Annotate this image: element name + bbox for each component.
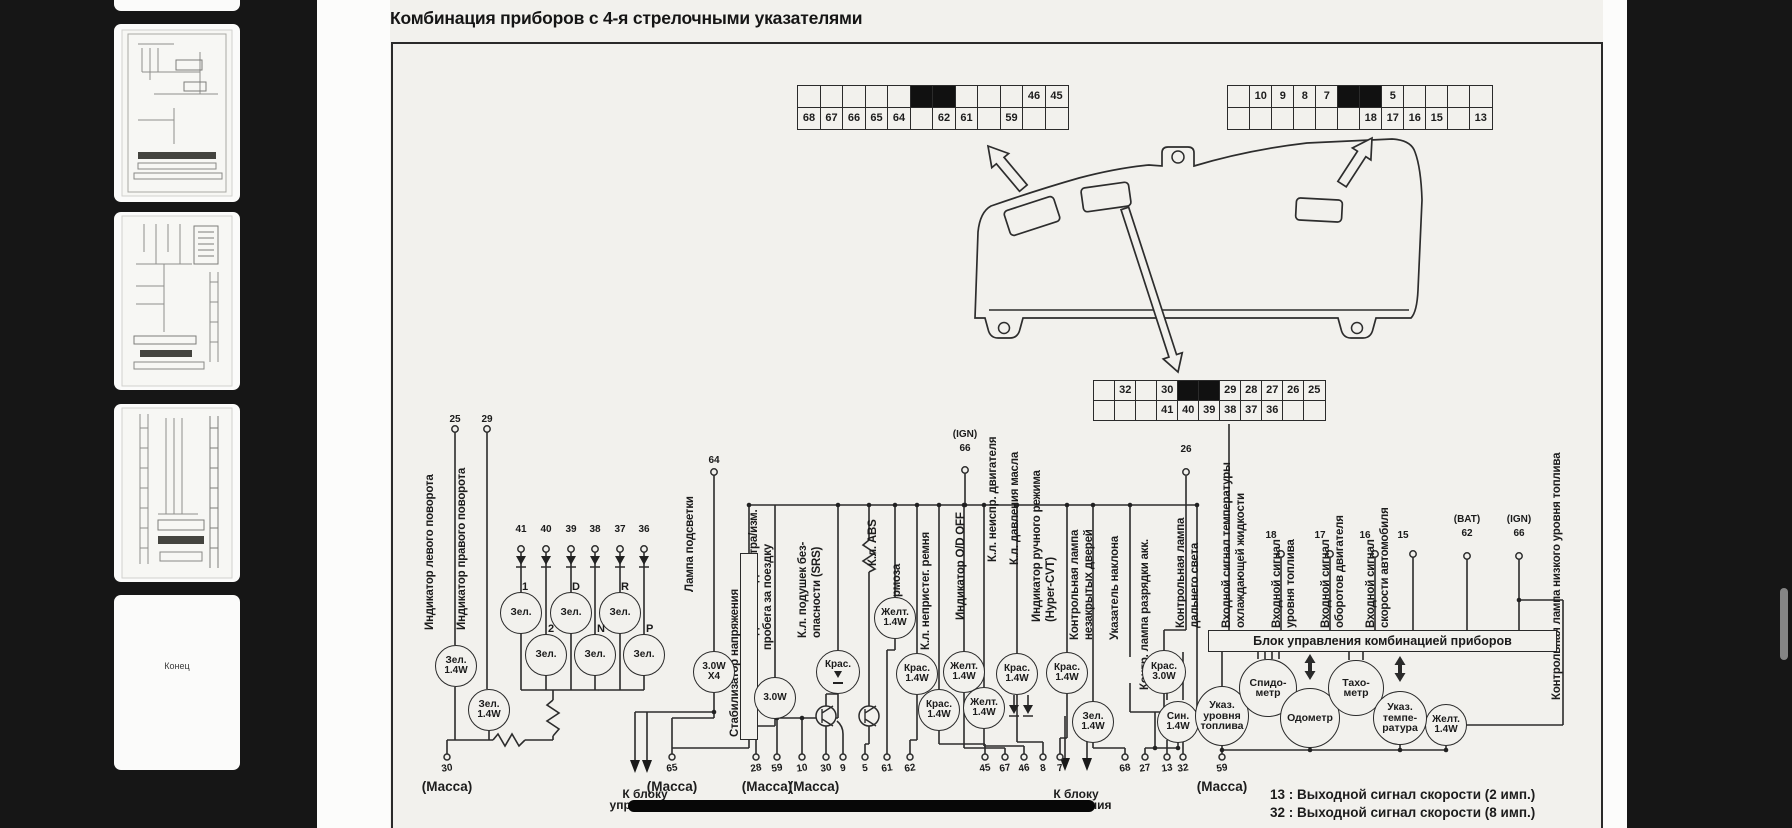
connector-cell: 32	[1114, 380, 1137, 401]
lamp-od-off: Желт.1.4W	[963, 687, 1005, 729]
connector-cell: 10	[1249, 85, 1273, 108]
lamp-tilt-indicator: Зел.1.4W	[1072, 701, 1114, 743]
connector-cell	[1093, 400, 1116, 421]
connector-cell	[910, 85, 934, 108]
connector-cell	[1227, 85, 1251, 108]
pin-number: 13	[1161, 762, 1174, 774]
pin-number: 65	[666, 762, 679, 774]
connector-cell	[865, 85, 889, 108]
cluster-mount-hole	[999, 323, 1010, 334]
connector-cell	[797, 85, 821, 108]
pin-number: 59	[771, 762, 784, 774]
connector-cell	[1114, 400, 1137, 421]
connector-cell	[1227, 107, 1251, 130]
connector-cell	[977, 85, 1001, 108]
pin-number-40: 40	[540, 524, 551, 535]
connector-cell: 28	[1240, 380, 1263, 401]
ground-label: (Масса)	[1197, 779, 1248, 794]
connector-cell	[1045, 107, 1069, 130]
connector-cell: 25	[1303, 380, 1326, 401]
pin-number-15: 15	[1397, 530, 1408, 541]
connector-cell	[1359, 85, 1383, 108]
wire-label: опасности (SRS)	[811, 547, 825, 638]
connector-cell: 36	[1261, 400, 1284, 421]
connector-cell	[910, 107, 934, 130]
connector-cell: 66	[842, 107, 866, 130]
thumbnail-schematic-icon	[114, 24, 240, 202]
pin-number: 8	[1039, 763, 1046, 775]
pin-number: 68	[1119, 762, 1132, 774]
pin-number: 7	[1056, 763, 1063, 775]
pin-number: 45	[979, 762, 992, 774]
connector-cell: 29	[1219, 380, 1242, 401]
pin-number: 5	[861, 763, 868, 775]
pin-number-16: 16	[1359, 530, 1370, 541]
wire-label: Индикатор левого поворота	[424, 474, 438, 630]
pin-number: 30	[441, 762, 454, 774]
connector-cell: 18	[1359, 107, 1383, 130]
connector-cell: 30	[1156, 380, 1179, 401]
connector-cell	[932, 85, 956, 108]
connector-cell	[1022, 107, 1046, 130]
ign-tag: (IGN)	[1507, 514, 1531, 525]
connector-middle: 32302928272625414039383736	[1093, 380, 1326, 421]
connector-cell: 45	[1045, 85, 1069, 108]
connector-cell: 39	[1198, 400, 1221, 421]
pin-number-64: 64	[708, 455, 719, 466]
connector-cell: 59	[1000, 107, 1024, 130]
ground-label: (Масса)	[789, 779, 840, 794]
ground-label: (Масса)	[742, 779, 793, 794]
connector-cell: 17	[1381, 107, 1405, 130]
lamp-brake: Крас.1.4W	[896, 653, 938, 695]
wire-label: пробега за поездку	[762, 544, 776, 650]
thumbnail-schematic-icon	[114, 212, 240, 390]
control-unit-box: Блок управления комбинацией приборов	[1208, 630, 1557, 652]
wire-label: Индикатор правого поворота	[456, 468, 470, 630]
sidebar-thumbnail-0[interactable]	[114, 0, 240, 11]
wire-label: К.л. подушек без-	[797, 542, 811, 638]
wire-label: К.л. неиспр. двигателя	[987, 437, 1001, 562]
pin-number: 62	[904, 762, 917, 774]
pin-number-36: 36	[638, 524, 649, 535]
wire-label: Индикатор O/D OFF	[955, 512, 969, 620]
cluster-connector-a	[1003, 196, 1060, 237]
pin-number: 67	[999, 762, 1012, 774]
pin-number: 9	[839, 763, 846, 775]
lamp-at-2: Зел.	[525, 634, 567, 676]
lamp-high-beam: Син.1.4W	[1157, 701, 1199, 743]
lamp-at-1: Зел.	[500, 592, 542, 634]
pin-number: 32	[1177, 762, 1190, 774]
connector-cell	[1177, 380, 1200, 401]
bat-tag: (BAT)	[1454, 514, 1480, 525]
wire-label: незакрытых дверей	[1083, 529, 1097, 640]
thumbnail-schematic-icon	[114, 404, 240, 582]
pin-number-25: 25	[449, 414, 460, 425]
pin-number: 28	[750, 762, 763, 774]
connector-cell: 16	[1403, 107, 1427, 130]
connector-cell: 64	[887, 107, 911, 130]
connector-cell	[1293, 107, 1317, 130]
lamp-at-n: Зел.	[574, 634, 616, 676]
connector-cell	[842, 85, 866, 108]
app-window: Конец Комбинация приборов с 4-я стрелочн…	[0, 0, 1792, 828]
diode-icon	[834, 671, 842, 682]
wire-label: Входной сигнал	[1365, 539, 1379, 628]
connector-cell	[1093, 380, 1116, 401]
connector-cell	[1447, 85, 1471, 108]
wire-label: скорости автомобиля	[1379, 507, 1393, 628]
sidebar-thumbnail-3[interactable]	[114, 404, 240, 582]
connector-cell	[1303, 400, 1326, 421]
connector-cell	[1403, 85, 1427, 108]
footnote: 32 : Выходной сигнал скорости (8 имп.)	[1270, 805, 1535, 820]
gear-letter: N	[597, 623, 605, 635]
connector-cell: 27	[1261, 380, 1284, 401]
pin-number: 46	[1018, 762, 1031, 774]
lamp-abs: Желт.1.4W	[874, 597, 916, 639]
lamp-at-p: Зел.	[623, 634, 665, 676]
wire-label: К.л. давления масла	[1009, 452, 1023, 565]
connector-cell	[977, 107, 1001, 130]
pin-number-26: 26	[1180, 444, 1191, 455]
connector-cell: 62	[932, 107, 956, 130]
gear-letter: P	[646, 623, 653, 635]
cluster-mount-hole	[1172, 151, 1184, 163]
pin-number-66: 66	[959, 443, 970, 454]
wire-label: К.л. ABS	[867, 519, 881, 566]
wire-label: Контрольная лампа	[1069, 530, 1083, 640]
gear-letter: D	[572, 581, 580, 593]
cluster-connector-b	[1081, 182, 1132, 212]
pin-number-62: 62	[1461, 528, 1472, 539]
end-page-label: Конец	[114, 661, 240, 671]
wire-label: дальнего света	[1189, 543, 1203, 628]
connector-cell	[1469, 85, 1493, 108]
wire-label: Входной сигнал температуры	[1221, 462, 1235, 628]
wire-label: оборотов двигателя	[1334, 515, 1348, 628]
connector-cell: 37	[1240, 400, 1263, 421]
sidebar-thumbnail-2[interactable]	[114, 212, 240, 390]
pin-number: 59	[1216, 762, 1229, 774]
arrow-to-middle-connector	[1115, 205, 1187, 375]
pin-number: 30	[820, 762, 833, 774]
connector-cell: 9	[1271, 85, 1295, 108]
connector-cell: 65	[865, 107, 889, 130]
pin-number: 27	[1139, 762, 1152, 774]
lamp-door-open: Крас.1.4W	[1046, 652, 1088, 694]
connector-cell	[1447, 107, 1471, 130]
redaction-bar	[628, 800, 1095, 812]
connector-cell: 41	[1156, 400, 1179, 421]
lamp-srs: Крас.	[816, 650, 860, 694]
connector-cell: 68	[797, 107, 821, 130]
pin-terminals-bottom	[444, 754, 1225, 760]
pin-number-39: 39	[565, 524, 576, 535]
lamp-check-engine: Крас.1.4W	[918, 689, 960, 731]
connector-left: 46456867666564626159	[797, 85, 1069, 130]
connector-cell: 61	[955, 107, 979, 130]
connector-cell	[955, 85, 979, 108]
lamp-oil-pressure: Крас.1.4W	[996, 653, 1038, 695]
footnote: 13 : Выходной сигнал скорости (2 имп.)	[1270, 787, 1535, 802]
lamp-right-turn: Зел.1.4W	[468, 689, 510, 731]
connector-cell: 13	[1469, 107, 1493, 130]
wire-label: Входной сигнал	[1320, 539, 1334, 628]
wire-label: Входной сигнал	[1271, 539, 1285, 628]
connector-right: 1098751817161513	[1227, 85, 1493, 130]
connector-cell	[1282, 400, 1305, 421]
connector-cell	[1425, 85, 1449, 108]
lamp-at-r: Зел.	[599, 592, 641, 634]
lamp-left-turn: Зел.1.4W	[435, 645, 477, 687]
lamp-at-d: Зел.	[550, 592, 592, 634]
connector-cell: 38	[1219, 400, 1242, 421]
connector-cell: 46	[1022, 85, 1046, 108]
connector-cell: 26	[1282, 380, 1305, 401]
pin-number-18: 18	[1265, 530, 1276, 541]
transistor-symbol	[816, 706, 836, 726]
connector-cell: 8	[1293, 85, 1317, 108]
ign-tag: (IGN)	[953, 429, 977, 440]
connector-cell: 67	[820, 107, 844, 130]
sidebar-thumbnail-4[interactable]: Конец	[114, 595, 240, 770]
scrollbar-thumb[interactable]	[1780, 588, 1788, 660]
connector-cell: 40	[1177, 400, 1200, 421]
connector-cell	[1249, 107, 1273, 130]
pin-number: 10	[796, 762, 809, 774]
transistor-symbol	[859, 706, 879, 726]
pin-number-66: 66	[1513, 528, 1524, 539]
wire-label: Контрольная лампа низкого уровня топлива	[1551, 453, 1565, 700]
cluster-mount-hole	[1352, 323, 1363, 334]
wire-label: Контрольная лампа	[1175, 518, 1189, 628]
cluster-connector-c	[1295, 198, 1342, 222]
lamp-charge: Крас.3.0W	[1142, 650, 1186, 694]
wire-label: К.л. непристег. ремня	[920, 532, 934, 650]
pin-number-38: 38	[589, 524, 600, 535]
gear-letter: 1	[522, 581, 528, 593]
lamp-low-fuel: Желт.1.4W	[1425, 704, 1467, 746]
pin-number-37: 37	[614, 524, 625, 535]
document-page: Комбинация приборов с 4-я стрелочными ук…	[317, 0, 1627, 828]
connector-cell	[1337, 107, 1361, 130]
connector-cell	[887, 85, 911, 108]
ground-label: (Масса)	[422, 779, 473, 794]
connector-cell: 5	[1381, 85, 1405, 108]
wire-label: охлаждающей жидкости	[1235, 493, 1249, 628]
wire-label: Указатель наклона	[1109, 536, 1123, 640]
connector-cell	[1000, 85, 1024, 108]
wire-label: уровня топлива	[1285, 539, 1299, 628]
pin-number-41: 41	[515, 524, 526, 535]
connector-cell	[820, 85, 844, 108]
connector-cell	[1135, 400, 1158, 421]
pin-number: 61	[881, 762, 894, 774]
connector-cell	[1337, 85, 1361, 108]
pin-number-17: 17	[1314, 530, 1325, 541]
gauge-temperature: Указ.темпе-ратура	[1373, 691, 1427, 745]
sidebar-thumbnail-1[interactable]	[114, 24, 240, 202]
connector-cell	[1198, 380, 1221, 401]
connector-cell	[1271, 107, 1295, 130]
arrow-to-left-connector	[980, 139, 1032, 195]
lamp-odometer-illumination: 3.0W	[754, 677, 796, 719]
connector-cell: 7	[1315, 85, 1339, 108]
connector-cell	[1315, 107, 1339, 130]
lamp-illumination: 3.0WX4	[693, 651, 735, 693]
connector-cell: 15	[1425, 107, 1449, 130]
wire-label: (Hyper-CVT)	[1045, 557, 1059, 622]
connector-cell	[1135, 380, 1158, 401]
wire-label: Индикатор ручного режима	[1031, 470, 1045, 622]
gear-letter: 2	[548, 623, 554, 635]
pin-number-29: 29	[481, 414, 492, 425]
gear-letter: R	[621, 581, 629, 593]
wire-label: Лампа подсветки	[684, 496, 698, 592]
